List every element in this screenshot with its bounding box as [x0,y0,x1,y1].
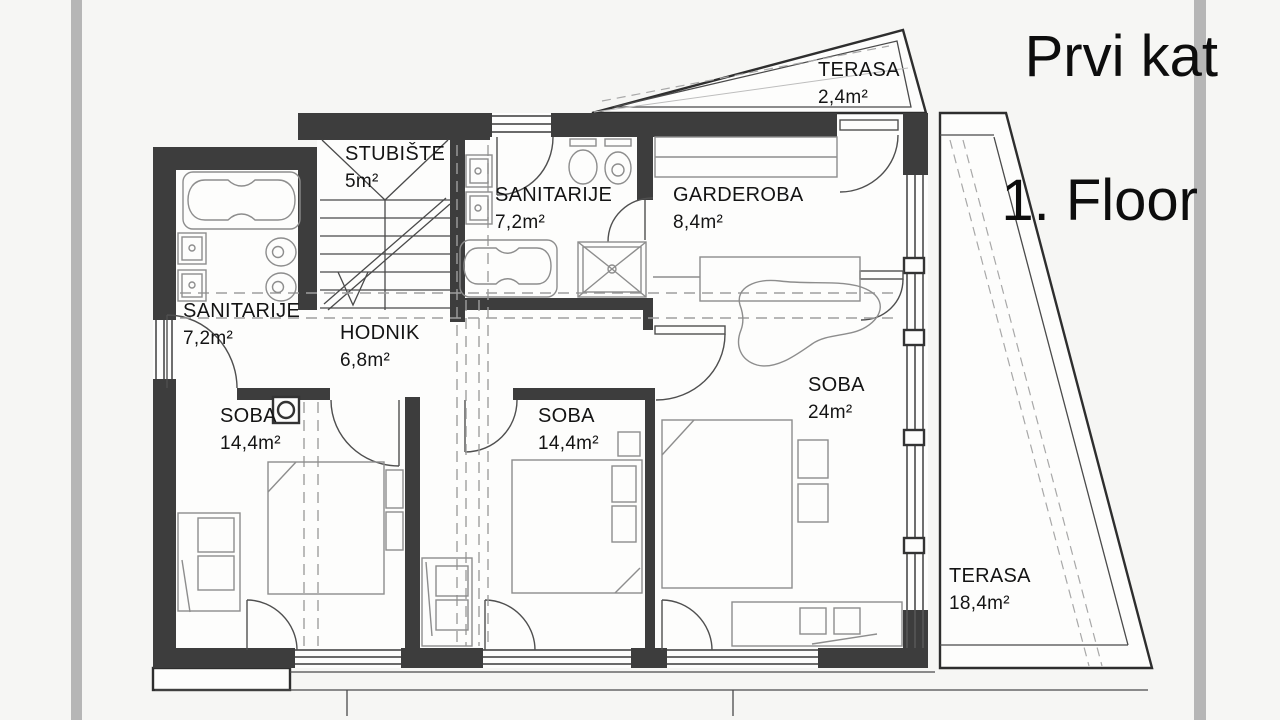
room-area: 18,4m² [949,590,1031,617]
room-area: 7,2m² [183,325,300,352]
room-label-hodnik: HODNIK 6,8m² [340,320,420,374]
room-area: 8,4m² [673,209,804,236]
room-label-soba-large: SOBA 24m² [808,372,865,426]
room-name: SANITARIJE [495,182,612,209]
room-name: SOBA [538,403,599,430]
screenshot-root: TERASA 2,4m² STUBIŠTE 5m² SANITARIJE 7,2… [0,0,1280,720]
room-label-garderoba: GARDEROBA 8,4m² [673,182,804,236]
room-area: 24m² [808,399,865,426]
room-area: 14,4m² [220,430,281,457]
room-name: STUBIŠTE [345,141,445,168]
room-label-terasa-top: TERASA 2,4m² [818,57,900,111]
plan-title-english: 1. Floor [928,170,1198,232]
room-label-soba-left: SOBA 14,4m² [220,403,281,457]
room-area: 14,4m² [538,430,599,457]
room-name: SOBA [220,403,281,430]
ground-lines [153,668,1148,716]
room-label-stubiste: STUBIŠTE 5m² [345,141,445,195]
room-name: TERASA [949,563,1031,590]
room-name: SANITARIJE [183,298,300,325]
room-name: GARDEROBA [673,182,804,209]
room-name: SOBA [808,372,865,399]
room-area: 5m² [345,168,445,195]
room-name: TERASA [818,57,900,84]
room-area: 2,4m² [818,84,900,111]
floor-plan-drawing [0,0,1280,720]
room-area: 6,8m² [340,347,420,374]
plan-title-croatian: Prvi kat [950,26,1218,88]
room-label-sanitarije-left: SANITARIJE 7,2m² [183,298,300,352]
room-label-sanitarije-upper: SANITARIJE 7,2m² [495,182,612,236]
room-label-soba-middle: SOBA 14,4m² [538,403,599,457]
room-area: 7,2m² [495,209,612,236]
room-label-terasa-right: TERASA 18,4m² [949,563,1031,617]
room-name: HODNIK [340,320,420,347]
